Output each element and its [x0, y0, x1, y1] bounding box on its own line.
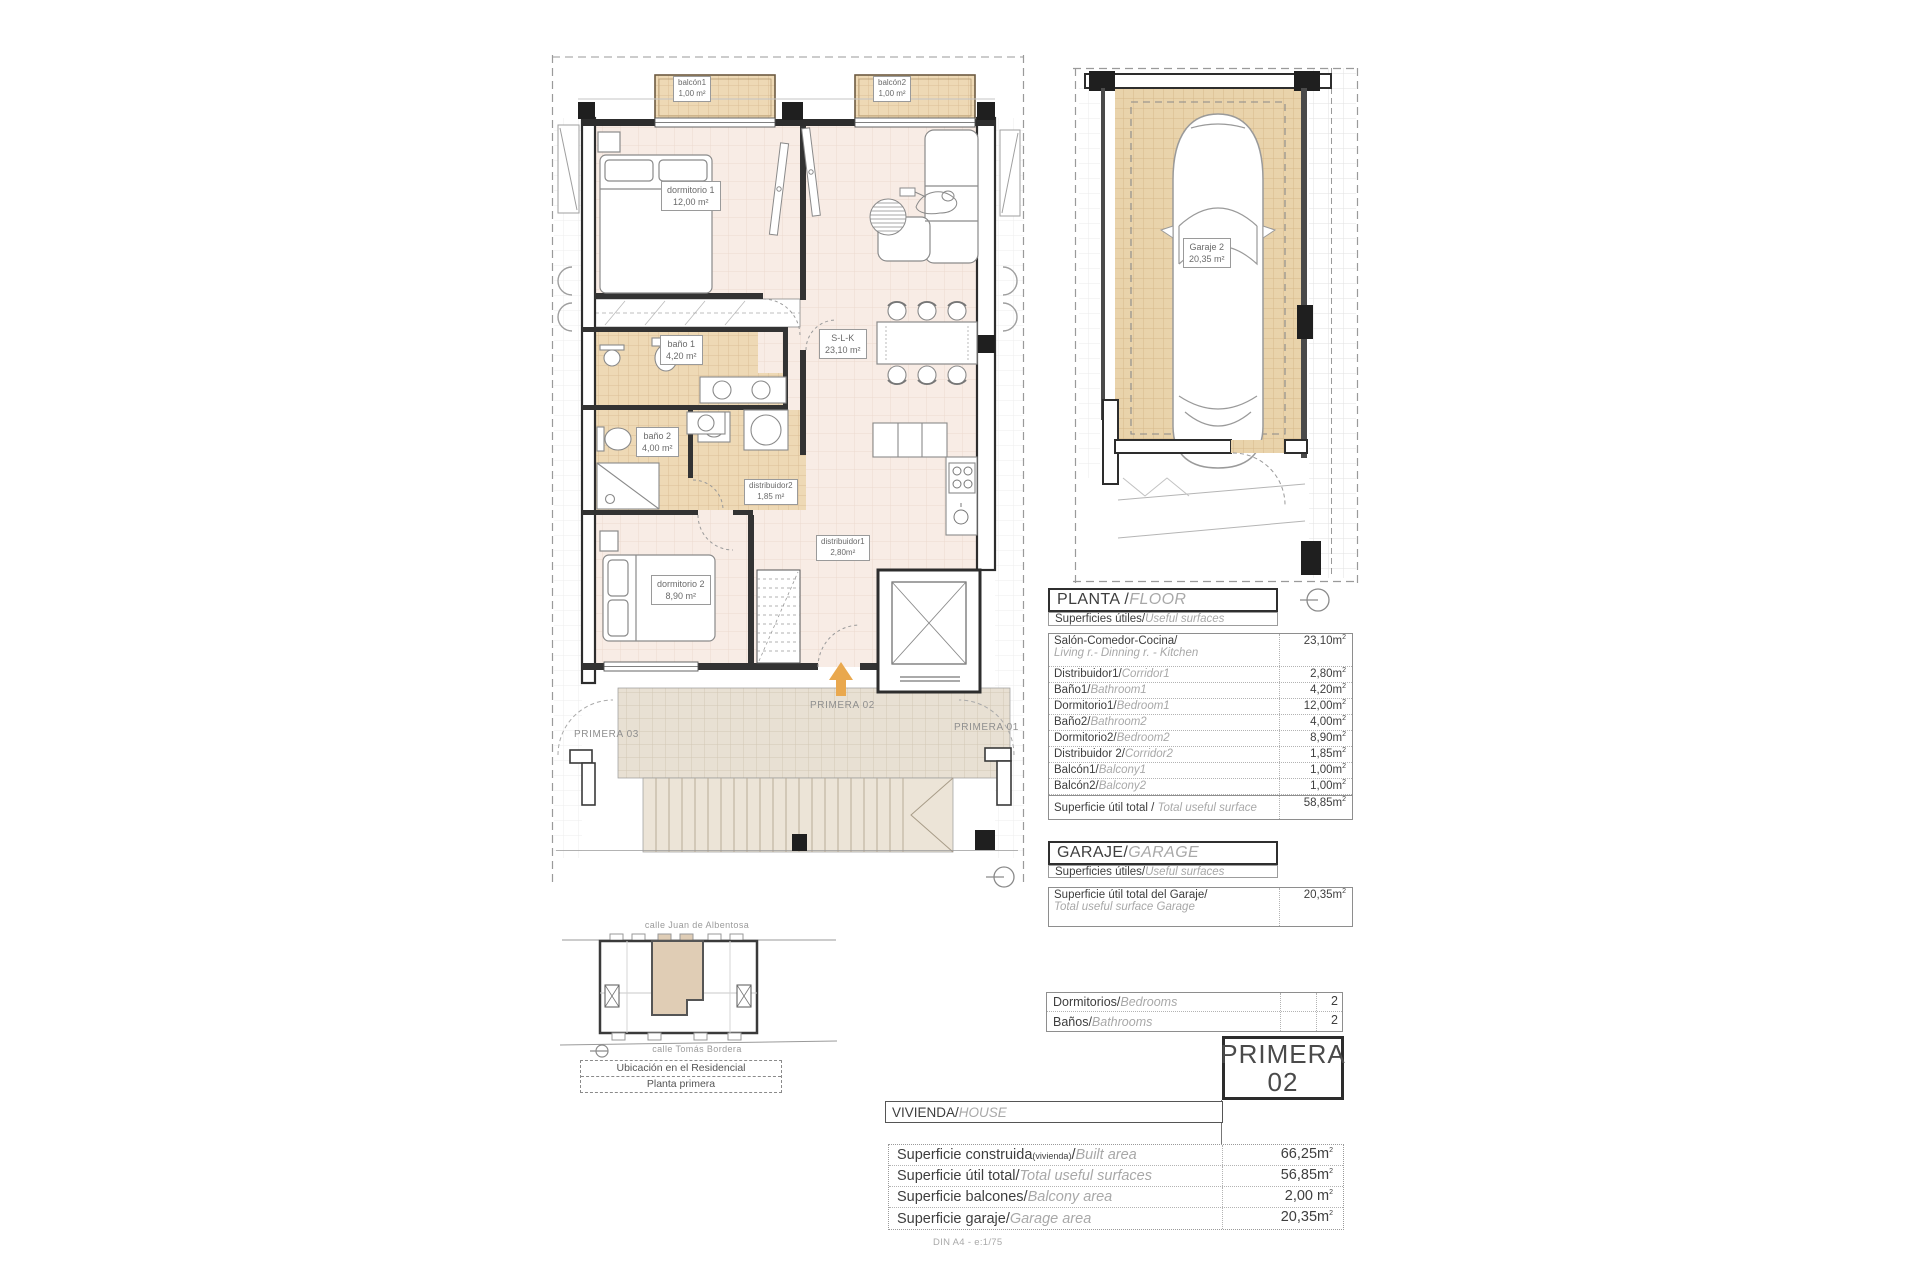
garage-plan: Garaje 2 20,35 m² [1073, 58, 1360, 585]
table-row: Balcón1/Balcony1 1,00m2 [1049, 763, 1352, 779]
table-row: Baño2/Bathroom2 4,00m2 [1049, 715, 1352, 731]
room-label-dormitorio2: dormitorio 2 8,90 m² [651, 575, 711, 605]
room-label-distribuidor1: distribuidor1 2,80m² [816, 535, 870, 561]
orientation-icon [986, 863, 1018, 891]
garage-plan-drawing [1073, 58, 1360, 585]
planta-subtitle: Superficies útiles/ Useful surfaces [1048, 612, 1278, 626]
unit-badge: PRIMERA 02 [1222, 1036, 1344, 1100]
room-label-dormitorio1: dormitorio 1 12,00 m² [661, 181, 721, 211]
caption-line-1: Ubicación en el Residencial [581, 1061, 781, 1077]
table-row: Salón-Comedor-Cocina/ Living r.- Dinning… [1049, 634, 1352, 667]
table-row: Superficie balcones/Balcony area 2,00 m2 [889, 1187, 1343, 1208]
room-label-balcon2: balcón2 1,00 m² [873, 76, 911, 102]
main-floor-plan: balcón1 1,00 m² balcón2 1,00 m² dormitor… [548, 55, 1038, 887]
garaje-table: Superficie útil total del Garaje/ Total … [1048, 887, 1353, 927]
garaje-section-title: GARAJE/ GARAGE [1048, 841, 1278, 865]
street-label-bottom: calle Tomás Bordera [607, 1044, 787, 1054]
vivienda-section-title: VIVIENDA/ HOUSE [885, 1101, 1223, 1123]
table-row: Superficie útil total del Garaje/ Total … [1049, 888, 1352, 926]
unit-label-primera01: PRIMERA 01 [954, 722, 1019, 733]
table-row: Superficie útil total/Total useful surfa… [889, 1166, 1343, 1187]
table-row: Superficie construida(vivienda)/Built ar… [889, 1145, 1343, 1166]
unit-label-primera02: PRIMERA 02 [810, 700, 875, 711]
table-row: Baño1/Bathroom1 4,20m2 [1049, 683, 1352, 699]
table-row: Baños/Bathrooms 2 [1047, 1012, 1342, 1031]
orientation-icon [1300, 586, 1332, 614]
table-total-row: Superficie útil total / Total useful sur… [1049, 795, 1352, 819]
table-row: Dormitorio1/Bedroom1 12,00m2 [1049, 699, 1352, 715]
street-label-top: calle Juan de Albentosa [597, 920, 797, 930]
room-label-slk: S-L-K 23,10 m² [819, 329, 867, 359]
blueprint-page: balcón1 1,00 m² balcón2 1,00 m² dormitor… [0, 0, 1920, 1280]
planta-section-title: PLANTA / FLOOR [1048, 588, 1278, 612]
scale-note: DIN A4 - e:1/75 [933, 1237, 1002, 1248]
room-label-balcon1: balcón1 1,00 m² [673, 76, 711, 102]
caption-line-2: Planta primera [581, 1077, 781, 1092]
floor-plan-drawing [548, 55, 1038, 887]
garaje-subtitle: Superficies útiles/ Useful surfaces [1048, 865, 1278, 878]
unit-label-primera03: PRIMERA 03 [574, 729, 639, 740]
vivienda-table: Superficie construida(vivienda)/Built ar… [888, 1144, 1344, 1230]
counts-table: Dormitorios/Bedrooms 2 Baños/Bathrooms 2 [1046, 992, 1343, 1032]
table-row: Dormitorios/Bedrooms 2 [1047, 993, 1342, 1012]
room-label-distribuidor2: distribuidor2 1,85 m² [744, 479, 798, 505]
planta-table: Salón-Comedor-Cocina/ Living r.- Dinning… [1048, 633, 1353, 820]
table-row: Superficie garaje/Garage area 20,35m2 [889, 1208, 1343, 1229]
table-row: Balcón2/Balcony2 1,00m2 [1049, 779, 1352, 795]
table-row: Distribuidor 2/Corridor2 1,85m2 [1049, 747, 1352, 763]
room-label-bano2: baño 2 4,00 m² [636, 427, 679, 457]
room-label-garaje2: Garaje 2 20,35 m² [1183, 238, 1231, 268]
site-plan-caption: Ubicación en el Residencial Planta prime… [580, 1060, 782, 1093]
table-row: Dormitorio2/Bedroom2 8,90m2 [1049, 731, 1352, 747]
table-row: Distribuidor1/Corridor1 2,80m2 [1049, 667, 1352, 683]
room-label-bano1: baño 1 4,20 m² [660, 335, 703, 365]
